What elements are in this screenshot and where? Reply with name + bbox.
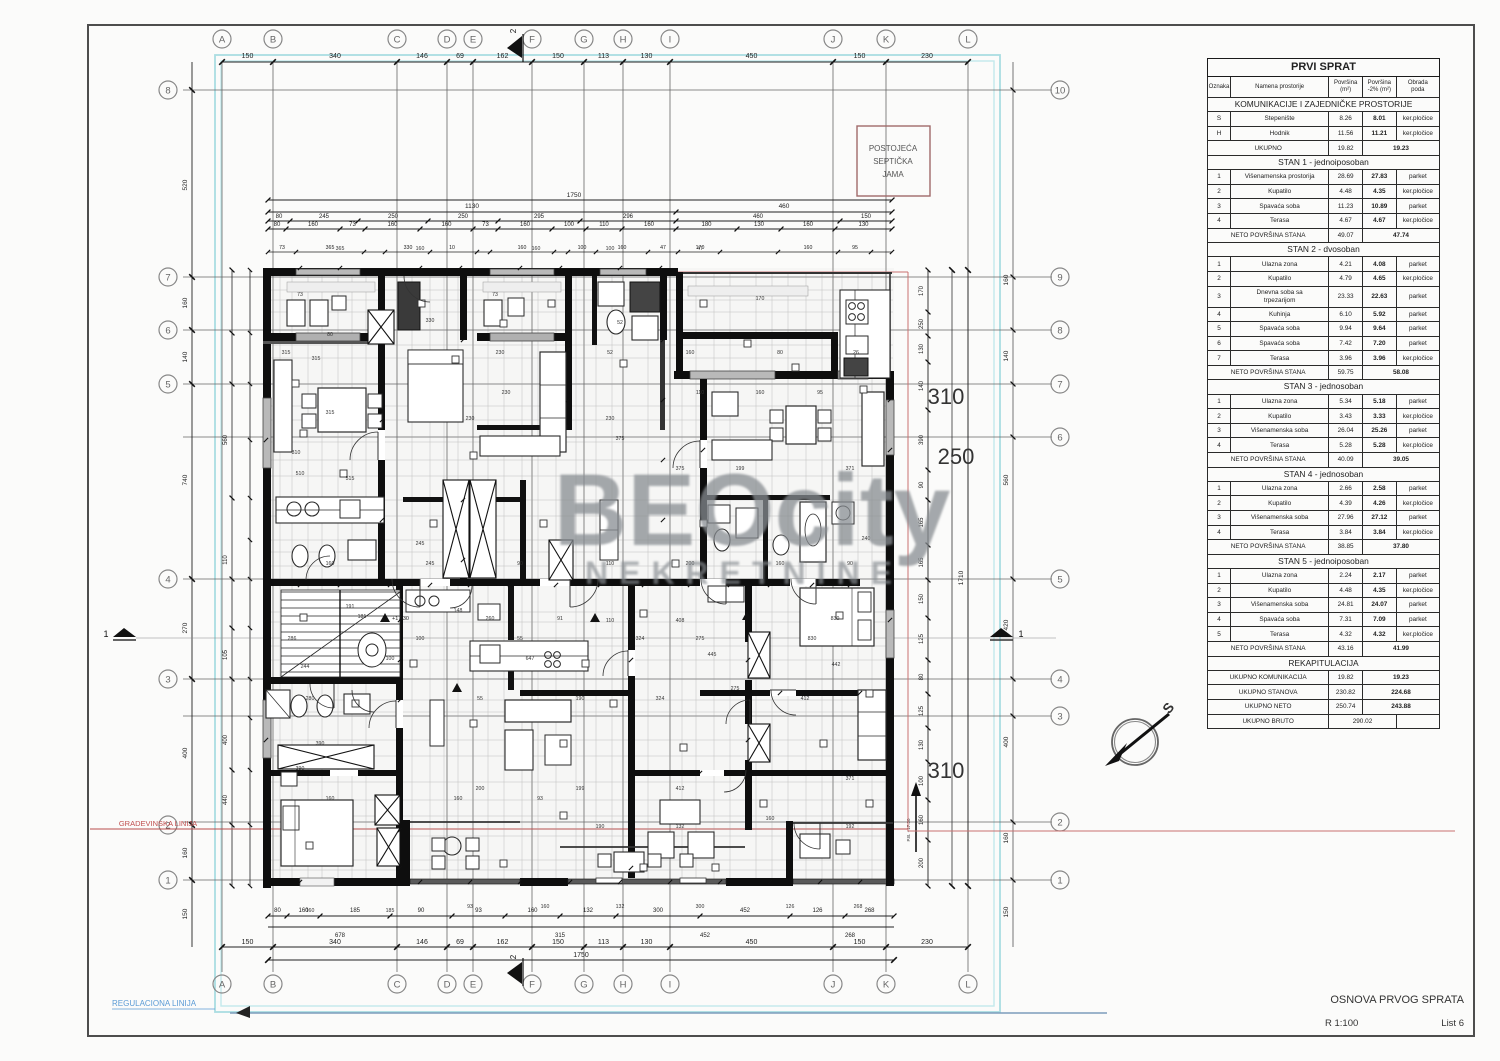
svg-text:4: 4 (1057, 675, 1062, 686)
svg-text:160: 160 (326, 796, 335, 802)
svg-text:90: 90 (418, 908, 425, 914)
svg-text:130: 130 (919, 739, 925, 750)
svg-text:125: 125 (919, 705, 925, 716)
svg-text:160: 160 (1003, 832, 1010, 843)
svg-text:6: 6 (1057, 433, 1062, 444)
svg-text:160: 160 (686, 350, 695, 356)
svg-text:230: 230 (921, 53, 933, 60)
svg-text:7: 7 (1057, 380, 1062, 391)
svg-text:7: 7 (165, 273, 170, 284)
svg-text:160: 160 (454, 796, 463, 802)
svg-text:140: 140 (182, 351, 189, 362)
svg-text:4: 4 (165, 575, 170, 586)
svg-text:160: 160 (756, 390, 765, 396)
svg-text:160: 160 (308, 222, 319, 228)
svg-text:408: 408 (676, 618, 685, 624)
svg-text:162: 162 (497, 939, 509, 946)
svg-text:445: 445 (708, 652, 717, 658)
svg-text:110: 110 (599, 222, 609, 228)
svg-text:452: 452 (700, 933, 711, 939)
svg-text:130: 130 (641, 53, 653, 60)
svg-text:150: 150 (552, 53, 564, 60)
svg-text:OSNOVA PRVOG SPRATA: OSNOVA PRVOG SPRATA (1330, 994, 1464, 1006)
svg-text:200: 200 (476, 786, 485, 792)
svg-text:126: 126 (786, 904, 795, 910)
svg-text:170: 170 (919, 285, 925, 296)
svg-text:9: 9 (1057, 273, 1062, 284)
svg-text:REGULACIONA LINIJA: REGULACIONA LINIJA (112, 999, 197, 1008)
svg-text:80: 80 (919, 673, 925, 680)
svg-text:150: 150 (182, 908, 189, 919)
svg-text:185: 185 (386, 908, 395, 914)
svg-text:280: 280 (306, 696, 315, 702)
svg-text:D: D (444, 35, 451, 46)
svg-text:230: 230 (496, 350, 505, 356)
svg-text:450: 450 (746, 53, 758, 60)
svg-text:I: I (669, 35, 672, 46)
svg-text:90: 90 (517, 561, 523, 567)
svg-text:310: 310 (928, 758, 965, 783)
svg-text:D: D (444, 980, 451, 991)
svg-text:244: 244 (301, 664, 310, 670)
svg-text:6: 6 (165, 326, 170, 337)
svg-text:160: 160 (527, 908, 538, 914)
svg-text:73: 73 (492, 292, 498, 298)
svg-text:146: 146 (416, 939, 428, 946)
svg-text:245: 245 (319, 214, 330, 220)
svg-text:250: 250 (458, 214, 469, 220)
svg-text:105: 105 (223, 649, 229, 660)
svg-text:K: K (883, 980, 890, 991)
svg-text:440: 440 (223, 794, 229, 805)
svg-text:170: 170 (756, 296, 765, 302)
svg-text:80: 80 (274, 222, 281, 228)
svg-text:268: 268 (864, 908, 875, 914)
svg-text:A: A (219, 35, 226, 46)
svg-text:647: 647 (526, 656, 535, 662)
svg-text:1130: 1130 (465, 203, 479, 210)
svg-text:150: 150 (552, 939, 564, 946)
svg-text:150: 150 (242, 53, 254, 60)
svg-text:199: 199 (576, 786, 585, 792)
svg-text:10: 10 (1055, 86, 1066, 97)
svg-text:460: 460 (779, 203, 790, 210)
svg-text:BEOcity: BEOcity (554, 453, 951, 567)
svg-text:List 6: List 6 (1441, 1018, 1464, 1029)
svg-text:SEPTIČKA: SEPTIČKA (873, 157, 913, 166)
svg-text:390: 390 (316, 741, 325, 747)
svg-text:324: 324 (636, 636, 645, 642)
svg-text:140: 140 (919, 380, 925, 391)
svg-text:H: H (620, 980, 627, 991)
svg-text:160: 160 (306, 908, 315, 914)
svg-text:2: 2 (1057, 818, 1062, 829)
svg-text:5: 5 (165, 380, 170, 391)
svg-text:91: 91 (557, 616, 563, 622)
svg-text:NEKRETNINE: NEKRETNINE (585, 555, 903, 591)
svg-text:442: 442 (832, 662, 841, 668)
svg-text:148: 148 (454, 608, 463, 614)
svg-text:113: 113 (598, 939, 609, 946)
svg-text:1: 1 (1018, 629, 1023, 639)
svg-text:110: 110 (606, 618, 614, 624)
svg-text:420: 420 (1003, 619, 1010, 630)
svg-text:125: 125 (919, 633, 925, 644)
svg-text:160: 160 (326, 561, 335, 567)
svg-text:113: 113 (598, 53, 609, 60)
svg-text:315: 315 (282, 350, 291, 356)
svg-text:160: 160 (804, 245, 813, 251)
svg-text:POSTOJEĆA: POSTOJEĆA (869, 144, 918, 153)
svg-text:160: 160 (644, 222, 655, 228)
svg-text:26: 26 (853, 350, 859, 356)
svg-text:80: 80 (274, 908, 281, 914)
svg-text:100: 100 (564, 222, 575, 228)
svg-text:191: 191 (346, 604, 355, 610)
svg-text:93: 93 (537, 796, 543, 802)
svg-text:132: 132 (616, 904, 625, 910)
svg-text:390: 390 (296, 766, 305, 772)
svg-text:520: 520 (182, 179, 189, 190)
svg-text:100: 100 (386, 656, 395, 662)
svg-text:181: 181 (358, 614, 367, 620)
svg-text:260: 260 (486, 616, 495, 622)
svg-text:510: 510 (296, 471, 305, 477)
svg-text:1710: 1710 (958, 570, 965, 585)
svg-text:310: 310 (928, 384, 965, 409)
svg-text:126: 126 (812, 908, 823, 914)
svg-text:1: 1 (165, 876, 170, 887)
svg-text:150: 150 (1003, 906, 1010, 917)
svg-text:3: 3 (1057, 712, 1062, 723)
svg-text:160: 160 (387, 222, 398, 228)
svg-text:678: 678 (335, 933, 346, 939)
svg-text:1750: 1750 (567, 192, 582, 199)
svg-text:150: 150 (242, 939, 254, 946)
svg-text:A: A (219, 980, 226, 991)
svg-text:80: 80 (276, 214, 283, 220)
svg-text:69: 69 (456, 53, 464, 60)
svg-text:B: B (270, 980, 276, 991)
svg-text:160: 160 (416, 246, 425, 252)
svg-text:160: 160 (541, 904, 550, 910)
svg-text:340: 340 (329, 53, 341, 60)
svg-text:275: 275 (731, 686, 740, 692)
svg-text:146: 146 (416, 53, 428, 60)
svg-text:73: 73 (482, 222, 489, 228)
svg-text:515: 515 (346, 476, 355, 482)
svg-text:L: L (965, 35, 970, 46)
svg-text:1: 1 (1057, 876, 1062, 887)
svg-text:245: 245 (426, 561, 435, 567)
svg-text:230: 230 (606, 416, 615, 422)
svg-text:G: G (580, 980, 587, 991)
svg-text:190: 190 (596, 824, 605, 830)
svg-text:2: 2 (509, 954, 518, 959)
svg-text:560: 560 (1003, 474, 1010, 485)
svg-text:K: K (883, 35, 890, 46)
svg-text:C: C (394, 35, 401, 46)
svg-text:E: E (470, 35, 476, 46)
svg-text:JAMA: JAMA (882, 170, 904, 179)
svg-text:160: 160 (766, 816, 775, 822)
svg-text:B: B (270, 35, 276, 46)
svg-text:8: 8 (1057, 326, 1062, 337)
svg-text:1: 1 (103, 629, 108, 639)
svg-text:268: 268 (854, 904, 863, 910)
svg-text:160: 160 (919, 814, 925, 825)
svg-text:55: 55 (477, 696, 483, 702)
svg-text:2: 2 (509, 28, 518, 33)
svg-text:190: 190 (576, 696, 585, 702)
svg-text:R 1:100: R 1:100 (1325, 1018, 1358, 1029)
svg-text:150: 150 (854, 939, 866, 946)
svg-text:330: 330 (426, 318, 435, 324)
svg-text:130: 130 (754, 222, 765, 228)
svg-text:400: 400 (223, 734, 229, 745)
svg-text:140: 140 (1003, 350, 1010, 361)
svg-text:150: 150 (919, 593, 925, 604)
svg-text:55: 55 (517, 636, 523, 642)
svg-text:110: 110 (696, 390, 704, 396)
svg-text:450: 450 (746, 939, 758, 946)
svg-text:250: 250 (388, 214, 399, 220)
svg-text:L: L (965, 980, 970, 991)
svg-text:10: 10 (449, 245, 455, 251)
svg-text:192: 192 (846, 824, 855, 830)
svg-text:230: 230 (921, 939, 933, 946)
svg-text:400: 400 (182, 747, 189, 758)
svg-text:3: 3 (165, 675, 170, 686)
svg-text:100: 100 (919, 775, 925, 786)
svg-text:560: 560 (223, 434, 229, 445)
svg-text:132: 132 (583, 908, 594, 914)
svg-text:80: 80 (777, 350, 783, 356)
svg-text:230: 230 (466, 416, 475, 422)
svg-text:160: 160 (532, 246, 541, 252)
svg-text:270: 270 (182, 622, 189, 633)
svg-text:185: 185 (350, 908, 361, 914)
svg-text:5: 5 (1057, 575, 1062, 586)
svg-text:830: 830 (831, 616, 840, 622)
svg-text:160: 160 (441, 222, 452, 228)
svg-text:150: 150 (861, 214, 872, 220)
svg-text:390: 390 (919, 434, 925, 445)
svg-text:340: 340 (329, 939, 341, 946)
svg-text:412: 412 (676, 786, 685, 792)
svg-text:315: 315 (312, 356, 321, 362)
svg-text:E: E (470, 980, 476, 991)
svg-text:375: 375 (616, 436, 625, 442)
svg-text:73: 73 (279, 245, 285, 251)
svg-text:740: 740 (182, 474, 189, 485)
svg-text:73: 73 (349, 222, 356, 228)
svg-text:160: 160 (182, 297, 189, 308)
svg-text:130: 130 (858, 222, 869, 228)
svg-text:47: 47 (660, 245, 666, 251)
svg-text:268: 268 (845, 933, 856, 939)
svg-text:412: 412 (801, 696, 810, 702)
svg-text:C: C (394, 980, 401, 991)
svg-text:150: 150 (854, 53, 866, 60)
svg-text:296: 296 (623, 214, 634, 220)
svg-text:160: 160 (520, 222, 531, 228)
svg-text:315: 315 (326, 410, 335, 416)
svg-text:365: 365 (336, 246, 345, 252)
svg-text:250: 250 (919, 318, 925, 329)
svg-text:371: 371 (846, 776, 855, 782)
svg-text:286: 286 (288, 636, 297, 642)
svg-text:295: 295 (534, 214, 545, 220)
svg-text:G: G (580, 35, 587, 46)
svg-text:80: 80 (327, 332, 333, 338)
svg-text:47: 47 (697, 246, 703, 252)
svg-text:69: 69 (456, 939, 464, 946)
svg-text:J: J (831, 35, 836, 46)
svg-text:73: 73 (297, 292, 303, 298)
svg-text:300: 300 (653, 908, 664, 914)
svg-text:100: 100 (606, 246, 615, 252)
svg-text:365: 365 (326, 245, 335, 251)
svg-text:324: 324 (656, 696, 665, 702)
svg-text:330: 330 (404, 245, 413, 251)
svg-text:275: 275 (696, 636, 705, 642)
svg-text:452: 452 (740, 908, 751, 914)
svg-text:J: J (831, 980, 836, 991)
svg-text:162: 162 (497, 53, 509, 60)
svg-text:160: 160 (518, 245, 527, 251)
svg-text:I: I (669, 980, 672, 991)
svg-text:110: 110 (223, 555, 229, 565)
svg-text:130: 130 (641, 939, 653, 946)
svg-text:200: 200 (919, 857, 925, 868)
svg-text:F: F (529, 35, 535, 46)
svg-text:8: 8 (165, 86, 170, 97)
svg-text:95: 95 (817, 390, 823, 396)
svg-text:H: H (620, 35, 627, 46)
svg-text:180: 180 (701, 222, 712, 228)
svg-text:93: 93 (467, 904, 473, 910)
svg-text:93: 93 (475, 908, 482, 914)
svg-text:830: 830 (808, 636, 817, 642)
svg-text:F: F (529, 980, 535, 991)
svg-text:160: 160 (1003, 274, 1010, 285)
svg-text:300: 300 (696, 904, 705, 910)
svg-text:230: 230 (502, 390, 511, 396)
svg-text:130: 130 (919, 343, 925, 354)
svg-text:95: 95 (852, 245, 858, 251)
svg-text:1750: 1750 (573, 952, 589, 959)
svg-text:315: 315 (555, 933, 566, 939)
svg-text:52: 52 (607, 350, 613, 356)
svg-text:460: 460 (753, 214, 764, 220)
svg-text:160: 160 (618, 245, 627, 251)
svg-text:245: 245 (416, 541, 425, 547)
svg-text:100: 100 (416, 636, 425, 642)
svg-text:310: 310 (292, 450, 301, 456)
svg-text:160: 160 (803, 222, 814, 228)
svg-text:160: 160 (182, 847, 189, 858)
svg-text:52: 52 (617, 320, 623, 326)
svg-text:GRADEVINSKA LINIJA: GRADEVINSKA LINIJA (119, 819, 197, 828)
svg-text:132: 132 (676, 824, 685, 830)
svg-text:400: 400 (1003, 736, 1010, 747)
svg-text:100: 100 (578, 245, 587, 251)
